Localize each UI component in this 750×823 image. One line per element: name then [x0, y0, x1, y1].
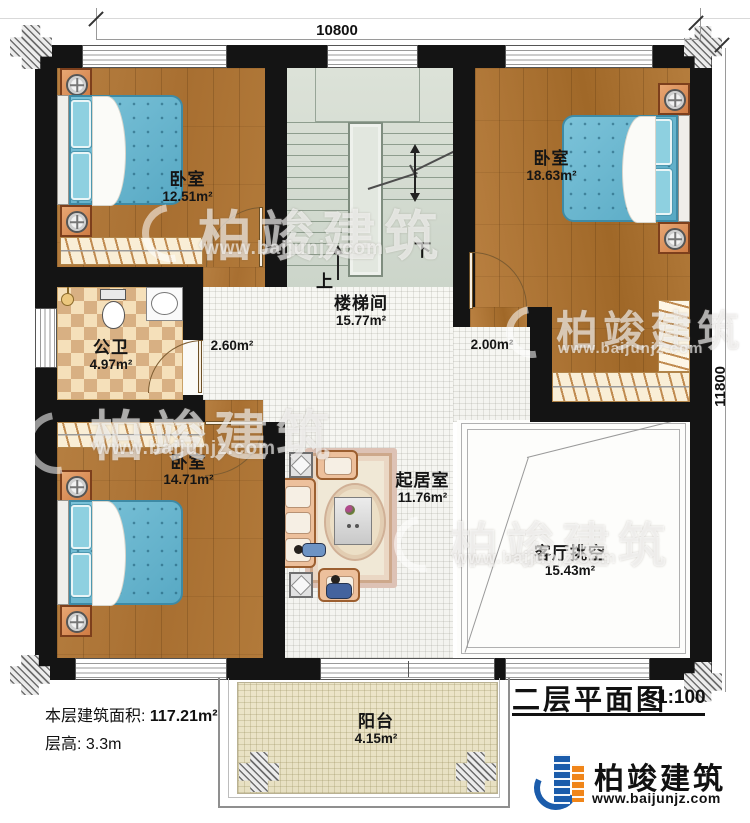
- room-name: 起居室: [355, 471, 490, 490]
- sink-icon: [151, 292, 178, 315]
- arrow-up-icon: [410, 144, 420, 153]
- sofa-cushion: [285, 486, 311, 508]
- logo-website: www.baijunjz.com: [592, 790, 721, 806]
- floor-height-value: 3.3m: [86, 736, 122, 753]
- room-area: 14.71m²: [121, 472, 256, 487]
- side-table-bottom: [291, 575, 311, 595]
- table-decor: [355, 524, 359, 528]
- lamp-icon: [664, 228, 686, 250]
- bed-blanket: [622, 116, 656, 223]
- hall-area-label: 2.60m²: [192, 338, 272, 353]
- room-label-bathroom: 公卫 4.97m²: [55, 338, 167, 372]
- room-area: 4.15m²: [306, 731, 446, 746]
- pillow: [71, 553, 91, 597]
- room-label-stairwell: 楼梯间 15.77m²: [291, 294, 431, 328]
- floor-height-label: 层高:: [45, 736, 81, 753]
- nightstand: [60, 470, 92, 502]
- sliding-door-divider: [408, 661, 410, 677]
- stair-landing-outline: [315, 60, 420, 122]
- window: [505, 658, 650, 680]
- page-frame-line: [0, 18, 750, 19]
- room-area: 15.77m²: [291, 313, 431, 328]
- room-name: 公卫: [55, 338, 167, 357]
- side-table: [289, 572, 313, 598]
- nightstand: [60, 205, 92, 237]
- title-underline: [512, 713, 705, 716]
- plan-title: 二层平面图: [512, 678, 667, 718]
- toilet-bowl-icon: [102, 301, 125, 329]
- floor-area-value: 117.21m²: [150, 708, 218, 725]
- lamp-icon: [66, 611, 88, 633]
- logo-tower-blue: [554, 754, 570, 804]
- window: [82, 45, 227, 68]
- stair-direction-line: [414, 152, 416, 194]
- window: [75, 658, 227, 680]
- wall: [35, 267, 203, 287]
- floor-area-label: 本层建筑面积:: [45, 708, 145, 725]
- bed-headboard: [57, 500, 69, 605]
- dimension-line-top: [96, 39, 700, 40]
- flower-decor-icon: [345, 505, 355, 515]
- wall: [690, 45, 712, 680]
- pillow: [71, 505, 91, 549]
- pillow: [71, 100, 91, 148]
- dimension-top-value: 10800: [302, 22, 372, 39]
- balcony-sliding-door: [320, 658, 495, 680]
- sofa-cushion: [285, 512, 311, 534]
- room-name: 楼梯间: [291, 294, 431, 313]
- nightstand: [658, 83, 690, 115]
- dimension-extension-line: [700, 8, 701, 40]
- watermark-website: www.baijunjz.com: [454, 548, 617, 568]
- floor-height-line: 层高: 3.3m: [45, 730, 121, 754]
- wardrobe: [552, 372, 690, 402]
- room-name: 卧室: [120, 170, 255, 189]
- wall: [530, 402, 712, 422]
- lamp-icon: [66, 211, 88, 233]
- window: [35, 308, 57, 368]
- room-label-living: 起居室 11.76m²: [355, 471, 490, 505]
- bed-headboard: [57, 95, 69, 205]
- door-leaf: [469, 252, 473, 309]
- table-decor: [347, 524, 351, 528]
- watermark-website: www.baijunjz.com: [204, 238, 384, 260]
- window: [327, 45, 418, 68]
- shower-icon: [61, 293, 74, 306]
- company-logo-icon: [534, 750, 592, 814]
- window: [505, 45, 653, 68]
- watermark-website: www.baijunjz.com: [96, 438, 276, 460]
- toilet-icon: [100, 289, 126, 300]
- wall: [227, 658, 320, 680]
- nightstand: [60, 605, 92, 637]
- plan-scale: 1:100: [657, 687, 706, 709]
- room-name: 卧室: [484, 149, 619, 168]
- floor-area-line: 本层建筑面积: 117.21m²: [45, 702, 218, 726]
- room-name: 阳台: [306, 712, 446, 731]
- person-figure: [302, 543, 326, 557]
- nightstand: [658, 222, 690, 254]
- room-label-balcony: 阳台 4.15m²: [306, 712, 446, 746]
- lamp-icon: [66, 74, 88, 96]
- person-figure: [326, 583, 352, 599]
- dimension-extension-line: [96, 8, 97, 40]
- lamp-icon: [664, 89, 686, 111]
- dimension-right-value: 11800: [712, 366, 729, 407]
- wall: [183, 287, 203, 340]
- logo-tower-orange: [572, 764, 584, 802]
- wall: [453, 307, 470, 327]
- bed-headboard: [678, 115, 690, 222]
- room-area: 18.63m²: [484, 168, 619, 183]
- pillow: [71, 152, 91, 200]
- floor-plan: 卧室 12.51m² 卧室 18.63m² 公卫 4.97m² 楼梯间 15.7…: [0, 0, 750, 823]
- lamp-icon: [66, 476, 88, 498]
- watermark-website: www.baijunjz.com: [558, 340, 703, 357]
- room-area: 11.76m²: [355, 490, 490, 505]
- room-label-bedroom-top-right: 卧室 18.63m²: [484, 149, 619, 183]
- wall: [495, 658, 505, 680]
- room-area: 4.97m²: [55, 357, 167, 372]
